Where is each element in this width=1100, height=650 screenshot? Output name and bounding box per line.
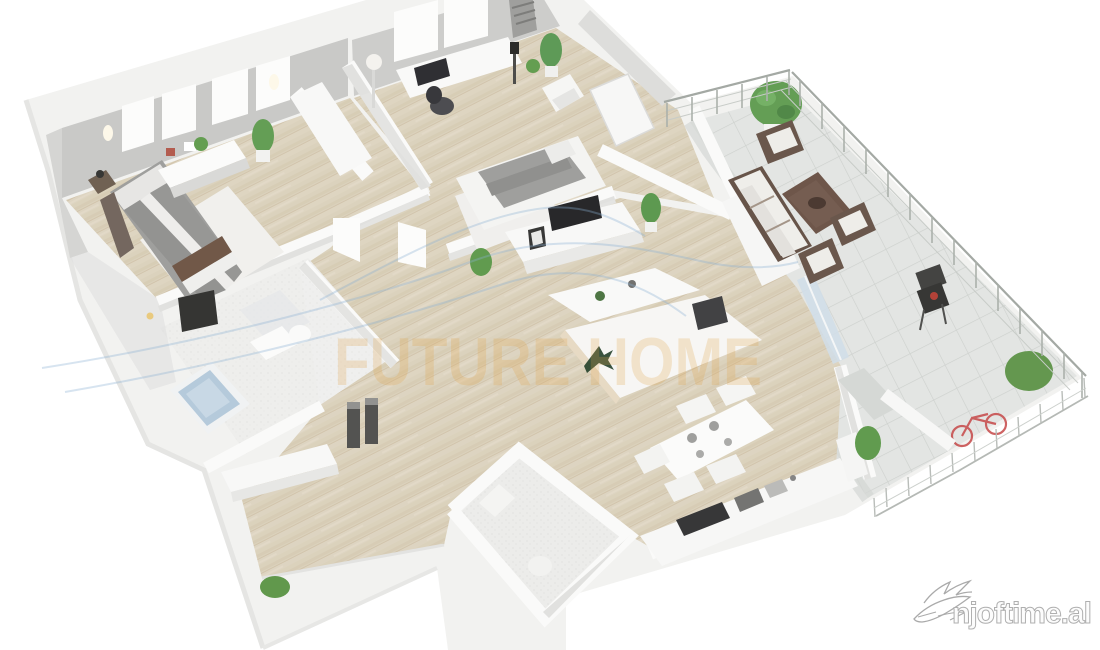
svg-text:njoftime.al: njoftime.al	[952, 597, 1091, 630]
svg-text:FUTURE HOME: FUTURE HOME	[334, 324, 762, 400]
